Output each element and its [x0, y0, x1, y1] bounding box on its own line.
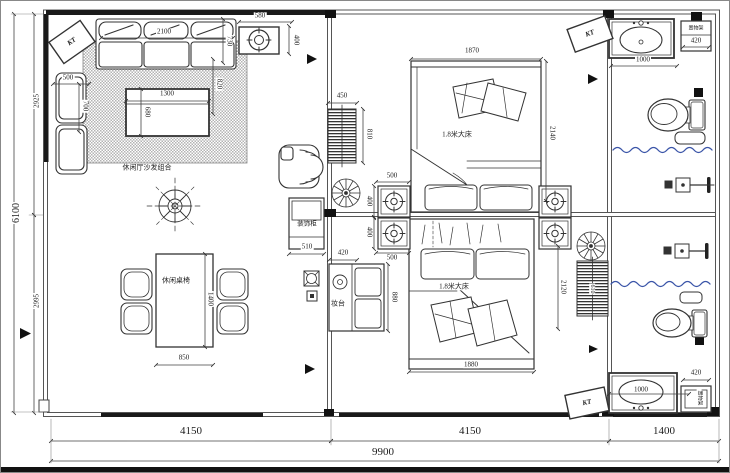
ceiling-fan-1	[332, 179, 360, 207]
bed-1	[411, 61, 541, 212]
blanket-fold	[411, 149, 467, 185]
faucet	[639, 406, 643, 410]
floor-plan-canvas: 58040021007308205007001300680休闲厅沙发组合2925…	[0, 0, 730, 473]
sofa	[96, 19, 236, 69]
quilt	[481, 83, 526, 121]
shower-mixer-bottom	[664, 243, 709, 259]
lounge-chair	[279, 145, 323, 188]
sink-vanity-top	[609, 19, 674, 58]
shower-curtain-bottom	[611, 282, 710, 287]
quilt	[468, 300, 517, 346]
dresser	[329, 264, 384, 331]
shower-curtain-top	[613, 148, 712, 153]
toilet-top	[648, 99, 705, 144]
faucet	[639, 21, 643, 25]
shelf-bottom	[681, 386, 711, 412]
ceiling-fan-2	[577, 232, 605, 260]
nightstand	[539, 218, 571, 249]
shelf-top	[681, 21, 711, 51]
dining-table	[156, 254, 213, 347]
armchairs	[56, 73, 87, 174]
ac-unit-2	[567, 16, 613, 52]
bath-mat	[680, 292, 702, 303]
page-edge-bar	[1, 467, 730, 472]
dining-set	[121, 254, 248, 347]
bath-mat	[675, 132, 705, 144]
ac-ceiling-unit	[239, 27, 279, 54]
bed-2	[409, 219, 534, 369]
decor-cabinet	[289, 198, 324, 249]
coffee-table	[126, 89, 209, 136]
radiator-top	[328, 105, 356, 167]
floor-symbols	[304, 271, 319, 301]
sink-vanity-bottom	[609, 373, 677, 413]
floor-plan-linework	[1, 1, 730, 473]
door-jamb	[39, 400, 49, 412]
pillow	[425, 185, 477, 210]
nightstand	[539, 186, 571, 217]
nightstand	[378, 186, 410, 217]
pillow	[480, 185, 532, 210]
shower-mixer-top	[665, 177, 714, 193]
nightstand	[378, 218, 410, 249]
sink-basin	[619, 380, 663, 404]
toilet-bottom	[653, 292, 707, 337]
radiator-bottom	[577, 257, 608, 320]
ceiling-lamp	[147, 178, 203, 234]
